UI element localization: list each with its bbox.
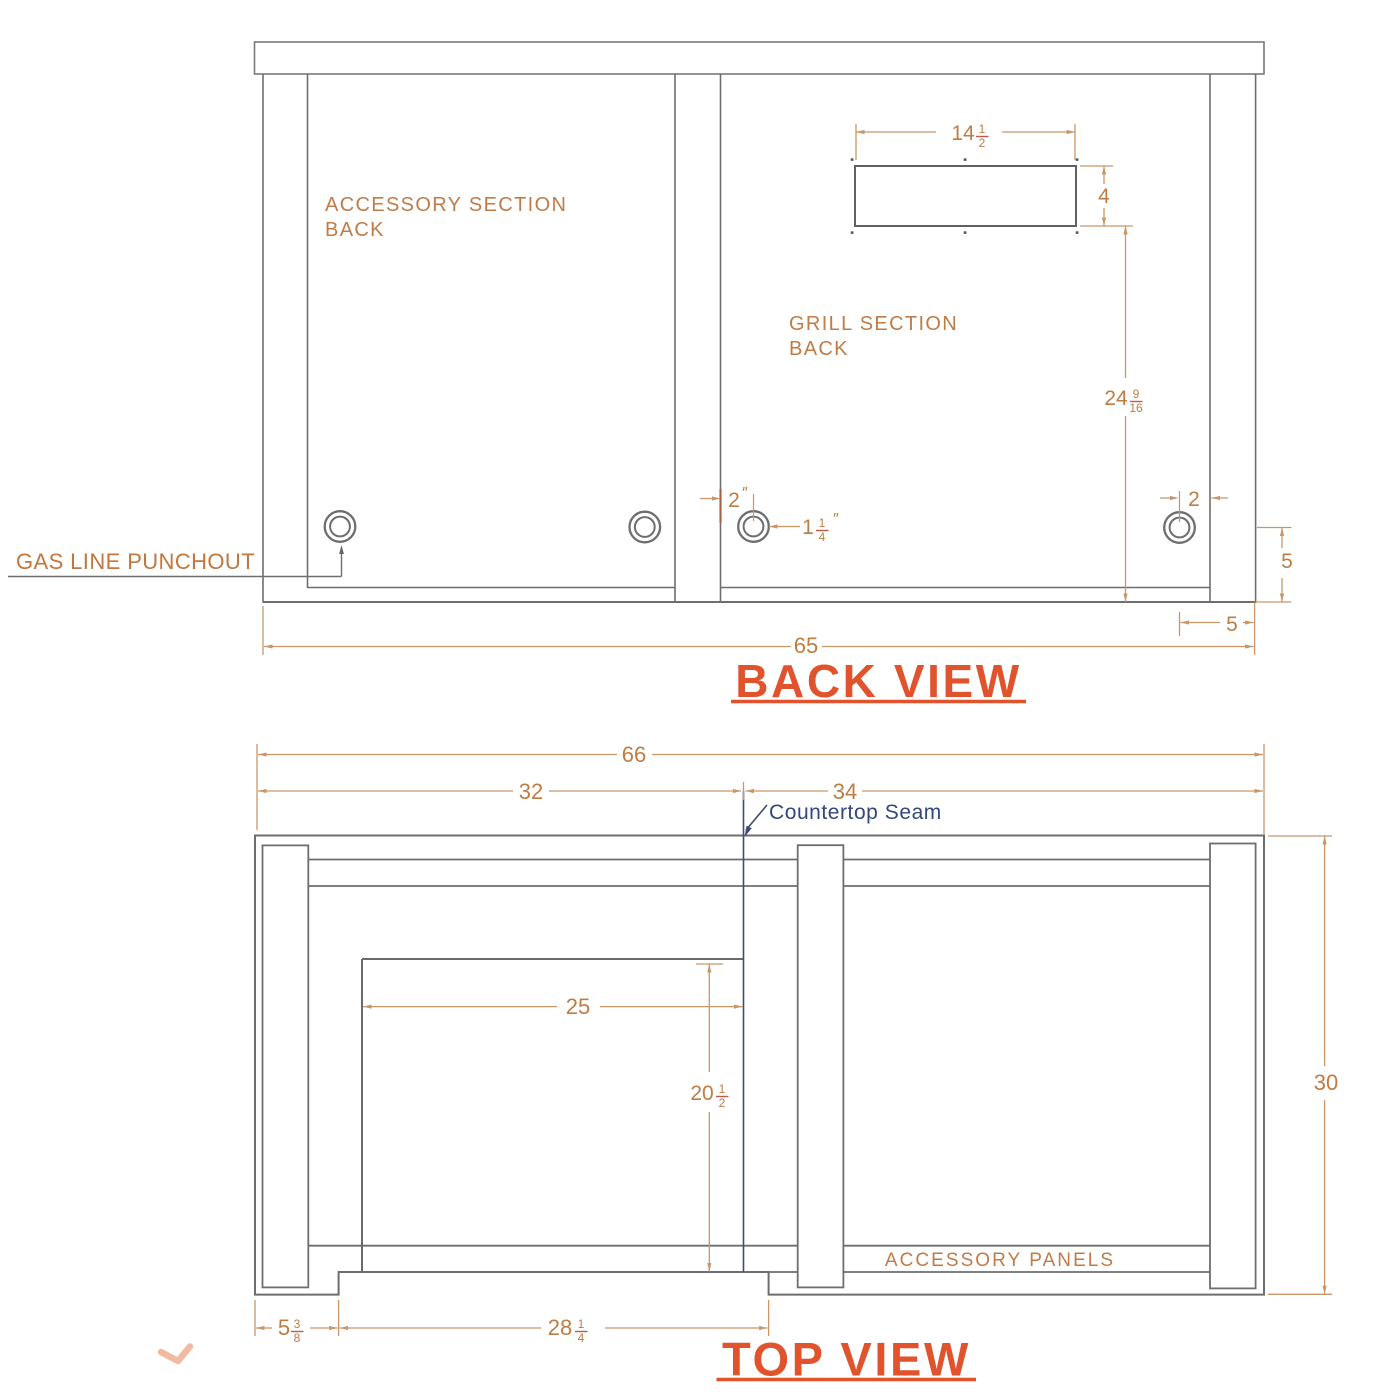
svg-text:ACCESSORY SECTION: ACCESSORY SECTION [325,194,567,216]
svg-text:1: 1 [719,1082,726,1096]
svg-text:30: 30 [1314,1070,1338,1095]
svg-text:66: 66 [622,742,646,767]
svg-text:24: 24 [1104,387,1128,410]
svg-text:28: 28 [548,1315,572,1340]
svg-text:2: 2 [719,1096,726,1110]
svg-text:9: 9 [1133,387,1140,401]
svg-text:25: 25 [566,994,590,1019]
svg-text:34: 34 [833,779,857,804]
svg-text:1: 1 [819,516,826,530]
svg-text:″: ″ [833,511,839,528]
svg-text:14: 14 [951,122,975,145]
svg-text:8: 8 [294,1331,301,1345]
svg-text:TOP VIEW: TOP VIEW [722,1333,971,1386]
svg-text:2: 2 [728,489,740,512]
svg-text:4: 4 [578,1331,585,1345]
svg-text:GAS LINE PUNCHOUT: GAS LINE PUNCHOUT [16,549,255,574]
svg-text:1: 1 [802,516,814,539]
svg-text:Countertop Seam: Countertop Seam [769,801,942,824]
svg-text:″: ″ [742,485,748,502]
svg-text:4: 4 [819,530,826,544]
svg-text:2: 2 [1188,488,1200,511]
svg-text:4: 4 [1098,185,1110,208]
svg-text:GRILL SECTION: GRILL SECTION [789,313,958,335]
svg-text:BACK VIEW: BACK VIEW [735,655,1022,707]
svg-text:2: 2 [979,136,986,150]
svg-text:5: 5 [1281,550,1293,573]
svg-text:ACCESSORY PANELS: ACCESSORY PANELS [885,1250,1115,1271]
svg-text:BACK: BACK [325,219,385,241]
svg-text:32: 32 [519,779,543,804]
svg-text:5: 5 [1226,613,1238,636]
svg-text:3: 3 [294,1317,301,1331]
svg-text:BACK: BACK [789,338,849,360]
svg-text:1: 1 [979,122,986,136]
svg-text:16: 16 [1129,401,1143,415]
svg-text:1: 1 [578,1317,585,1331]
svg-text:5: 5 [278,1315,290,1340]
svg-text:20: 20 [690,1082,713,1105]
